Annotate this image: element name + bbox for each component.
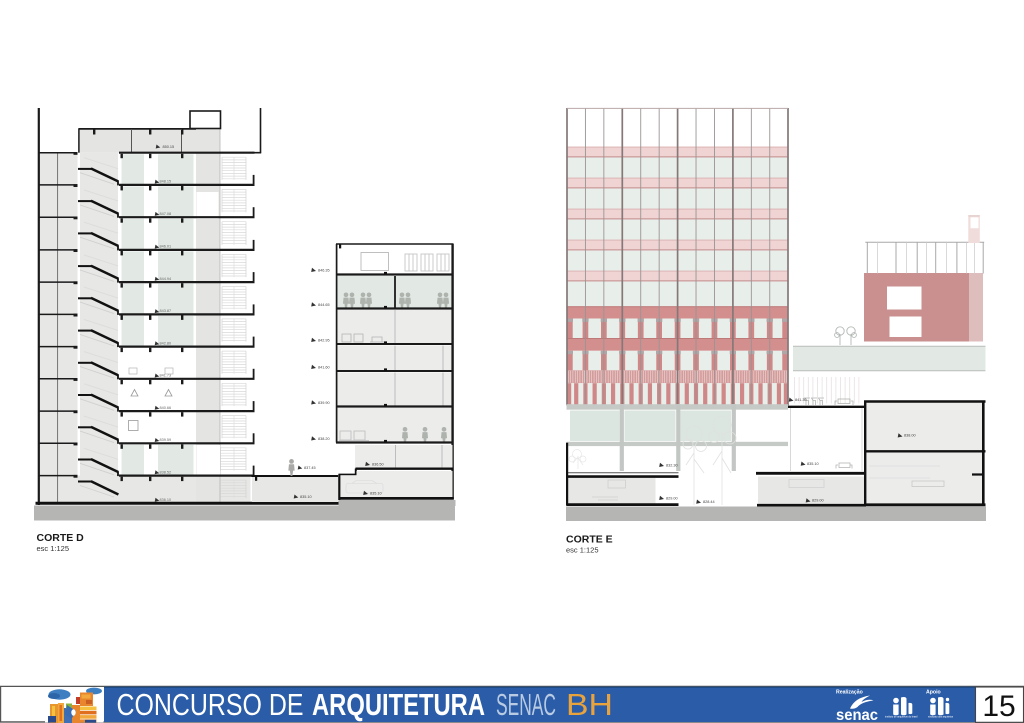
svg-text:ARQUITETURA: ARQUITETURA (312, 687, 485, 722)
svg-text:instituto de arquitetos do bra: instituto de arquitetos do brasil (885, 715, 918, 718)
svg-text:832.30: 832.30 (666, 464, 678, 468)
svg-text:15: 15 (982, 690, 1015, 723)
svg-text:846.35: 846.35 (318, 269, 330, 273)
svg-text:840.66: 840.66 (160, 406, 172, 410)
svg-text:838.20: 838.20 (318, 437, 330, 441)
svg-text:Apoio: Apoio (926, 690, 941, 696)
svg-text:842.80: 842.80 (160, 341, 172, 345)
svg-text:sindicato dos arquitetos: sindicato dos arquitetos (928, 715, 954, 718)
svg-text:839.90: 839.90 (318, 401, 330, 405)
svg-text:836.50: 836.50 (372, 463, 384, 467)
svg-text:844.65: 844.65 (318, 303, 330, 307)
svg-text:esc 1:125: esc 1:125 (566, 546, 599, 555)
svg-text:835.10: 835.10 (300, 495, 312, 499)
svg-text:835.10: 835.10 (370, 492, 382, 496)
svg-text:846.01: 846.01 (160, 245, 172, 249)
svg-text:838.00: 838.00 (904, 434, 916, 438)
svg-text:835.10: 835.10 (807, 462, 819, 466)
svg-text:844.94: 844.94 (160, 277, 172, 281)
svg-text:829.00: 829.00 (666, 497, 678, 501)
svg-text:843.87: 843.87 (160, 309, 172, 313)
svg-text:828.44: 828.44 (703, 500, 715, 504)
svg-text:839.59: 839.59 (160, 438, 172, 442)
svg-text:esc 1:125: esc 1:125 (37, 544, 70, 553)
svg-text:829.00: 829.00 (812, 499, 824, 503)
svg-text:847.08: 847.08 (160, 212, 172, 216)
svg-text:836.10: 836.10 (160, 498, 172, 502)
svg-text:Realização: Realização (836, 690, 863, 696)
svg-text:CONCURSO DE: CONCURSO DE (117, 687, 304, 722)
svg-text:848.15: 848.15 (160, 180, 172, 184)
svg-text:BH: BH (566, 687, 613, 722)
svg-text:SENAC: SENAC (496, 687, 556, 722)
svg-text:838.52: 838.52 (160, 470, 172, 474)
svg-text:841.30: 841.30 (795, 398, 807, 402)
svg-text:842.95: 842.95 (318, 339, 330, 343)
svg-text:CORTE E: CORTE E (566, 534, 613, 546)
svg-text:837.45: 837.45 (304, 466, 316, 470)
svg-text:CORTE D: CORTE D (37, 532, 85, 544)
svg-text:850.15: 850.15 (163, 145, 175, 149)
svg-text:senac: senac (836, 707, 878, 723)
svg-text:841.60: 841.60 (318, 366, 330, 370)
